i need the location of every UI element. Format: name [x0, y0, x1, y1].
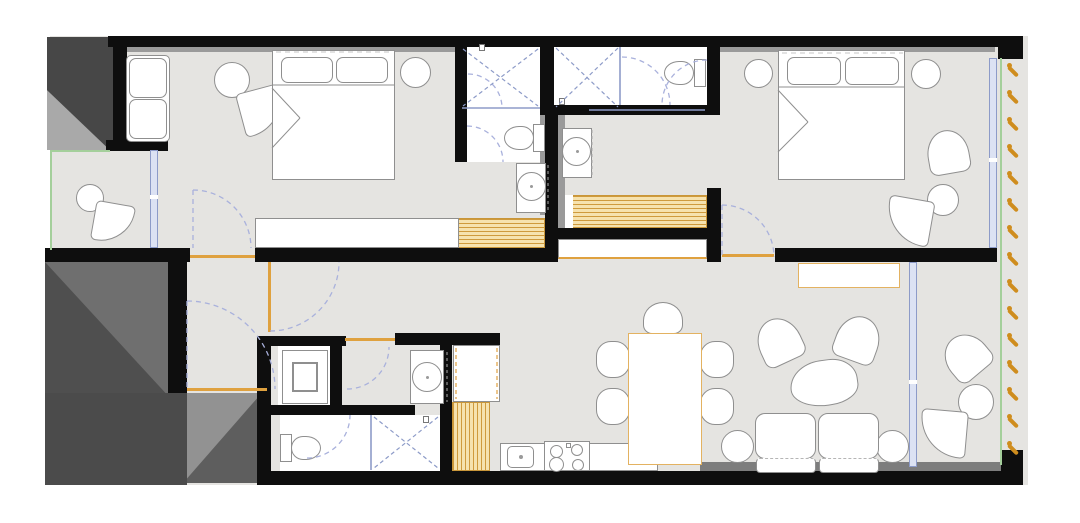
window-living-balcony	[909, 262, 917, 467]
balcony-edge-left-v	[50, 150, 52, 250]
wall-bottom	[257, 471, 1023, 485]
shower-valve	[479, 44, 485, 51]
nightstand	[400, 57, 431, 88]
louver-mark	[1005, 359, 1021, 377]
sofa-backrest	[819, 458, 879, 473]
louver-mark	[1005, 143, 1021, 161]
louver-mark	[1005, 413, 1021, 431]
wardrobe-edge	[565, 195, 573, 228]
wall-pillar-center	[707, 188, 721, 262]
pillow	[336, 57, 388, 83]
cooktop-knob	[566, 443, 571, 448]
sideboard-living	[798, 263, 900, 288]
louver-mark	[1005, 197, 1021, 215]
dining-chair	[596, 388, 630, 425]
dining-chair	[700, 388, 734, 425]
dining-chair	[700, 341, 734, 378]
window-sill-break	[989, 158, 997, 162]
louver-mark	[1005, 440, 1021, 458]
wall-wardrobe-master-bottom	[558, 228, 708, 239]
tall-cabinet	[453, 345, 500, 402]
dining-chair	[596, 341, 630, 378]
wall-top	[108, 36, 1016, 47]
wardrobe-wood-bedroom1	[457, 218, 545, 248]
wall-laundry-mid	[270, 405, 415, 415]
wall-bathroom2-bottom	[545, 105, 720, 115]
toilet-tank	[533, 124, 545, 152]
window-bedroom2-right	[989, 58, 997, 248]
window-sill-break	[150, 195, 158, 199]
wall-top-right-block	[998, 36, 1023, 59]
toilet-bowl	[291, 436, 321, 460]
louver-mark	[1005, 89, 1021, 107]
door-leaf-hall	[268, 262, 271, 332]
toilet-tank	[694, 59, 706, 87]
floor-plan	[0, 0, 1080, 523]
balcony-edge-left-h	[50, 150, 110, 152]
basin-drain	[576, 150, 579, 153]
wall-entry-left	[168, 262, 187, 393]
louver-mark	[1005, 224, 1021, 242]
pillow	[845, 57, 899, 85]
dining-table	[628, 333, 702, 465]
toilet-bowl	[504, 126, 534, 150]
louver-mark	[1005, 278, 1021, 296]
wall-bedroom2-bottom	[775, 248, 997, 262]
adjacent-block-top-left	[47, 37, 113, 150]
threshold-entry-door	[187, 388, 267, 391]
window-balcony-left	[150, 150, 158, 248]
wall-washer-right	[330, 338, 342, 407]
louver-mark	[1005, 170, 1021, 188]
louver-mark	[1005, 386, 1021, 404]
side-table	[876, 430, 909, 463]
pillow	[281, 57, 333, 83]
toilet-bowl	[664, 61, 694, 85]
facade-edge-right	[1000, 58, 1002, 465]
side-table	[721, 430, 754, 463]
dining-chair-head	[643, 302, 683, 334]
wardrobe-wood-master	[565, 195, 707, 228]
window-sill-break	[909, 380, 917, 384]
shade-triangle	[47, 37, 113, 150]
wall-bathroom1-left	[455, 47, 467, 162]
wall-bedroom1-left	[113, 47, 127, 142]
sink-drain	[519, 455, 523, 459]
sofa-two-seat-cushion	[818, 413, 879, 459]
sofa-two-seat-cushion	[755, 413, 816, 459]
basin-drain	[530, 185, 533, 188]
threshold-bedroom1-door	[190, 255, 255, 258]
basin-drain	[426, 376, 429, 379]
threshold-bedroom2-door	[722, 254, 774, 257]
wall-bedroom1-bottom	[255, 248, 558, 262]
washing-machine-drum	[292, 362, 318, 392]
louver-mark	[1005, 305, 1021, 323]
wall-balcony-bottom	[45, 248, 190, 262]
adjacent-block-bottom-strip	[45, 393, 187, 485]
wall-between-baths	[540, 36, 554, 115]
burner	[572, 459, 584, 471]
louver-mark	[1005, 251, 1021, 269]
shower-valve	[559, 98, 565, 105]
shower-valve	[423, 416, 429, 423]
louver-mark	[1005, 332, 1021, 350]
wall-laundry-left	[257, 336, 271, 471]
sofa-cushion	[129, 99, 167, 139]
threshold-laundry-door	[345, 338, 395, 341]
burner	[571, 444, 583, 456]
louver-mark	[1005, 116, 1021, 134]
sofa-cushion	[129, 58, 167, 98]
pantry-wood-kitchen	[452, 402, 490, 471]
louver-mark	[1005, 62, 1021, 80]
nightstand	[911, 59, 941, 89]
nightstand	[744, 59, 773, 88]
wardrobe-bedroom1	[255, 218, 459, 248]
wall-bathroom2-right	[707, 47, 720, 115]
sideboard-corridor	[558, 239, 707, 259]
sofa-backrest	[756, 458, 816, 473]
burner	[549, 457, 564, 472]
pillow	[787, 57, 841, 85]
wall-center-vertical	[545, 115, 558, 262]
